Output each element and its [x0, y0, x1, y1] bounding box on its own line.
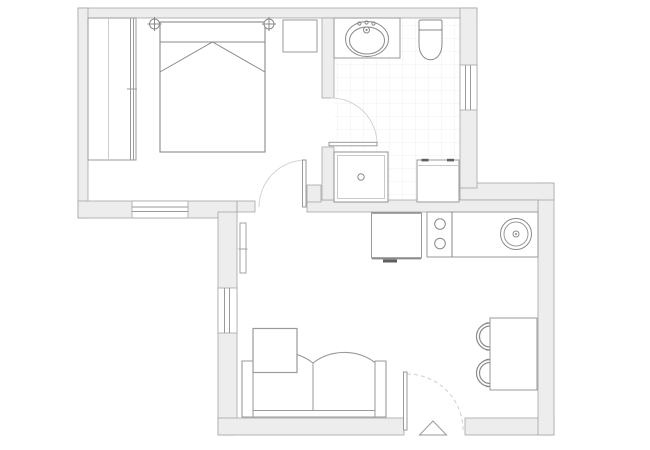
wall-top — [78, 8, 477, 18]
bedroom-window — [132, 201, 188, 218]
door-leaf — [303, 160, 307, 207]
oven-handle — [383, 260, 397, 263]
wall-left-upper — [78, 8, 88, 218]
wardrobe — [88, 18, 137, 160]
light-symbol-left — [148, 17, 162, 31]
round-kitchen-sink — [501, 219, 532, 250]
radiator — [239, 223, 248, 273]
kitchen — [372, 212, 539, 263]
shower — [334, 152, 388, 202]
washing-machine-control — [422, 159, 429, 162]
double-bed — [160, 22, 265, 152]
dining-chair — [477, 323, 491, 350]
dining-chair — [477, 360, 491, 387]
bedroom — [88, 17, 317, 160]
bathroom-window — [460, 65, 477, 110]
floor-plan — [0, 0, 650, 450]
shower-drain-icon — [358, 174, 364, 180]
bedroom-door — [259, 160, 306, 207]
door-leaf — [329, 142, 377, 146]
nightstand — [283, 20, 317, 52]
toilet — [419, 20, 442, 60]
wall-bathroom-left-lower — [322, 147, 334, 200]
wall-right-lower — [538, 183, 554, 435]
dining-table — [490, 318, 537, 390]
wall-junction-stub — [307, 185, 321, 202]
floorplan-canvas — [0, 0, 650, 450]
door-leaf — [404, 372, 408, 430]
door-swing-arc — [259, 160, 306, 207]
washing-machine — [417, 159, 459, 202]
washbasin — [346, 21, 389, 57]
washing-machine-control — [447, 159, 454, 162]
entrance-marker-triangle-icon — [420, 421, 447, 435]
door-swing-arc — [407, 374, 463, 430]
oven — [372, 213, 422, 263]
wall-bedroom-bottom-stub — [237, 201, 255, 212]
living-room-window — [218, 288, 237, 333]
coffee-table — [253, 329, 297, 373]
entrance-door — [404, 372, 464, 435]
wall-bathroom-left-upper — [322, 18, 334, 98]
wall-bottom-left — [218, 418, 404, 435]
